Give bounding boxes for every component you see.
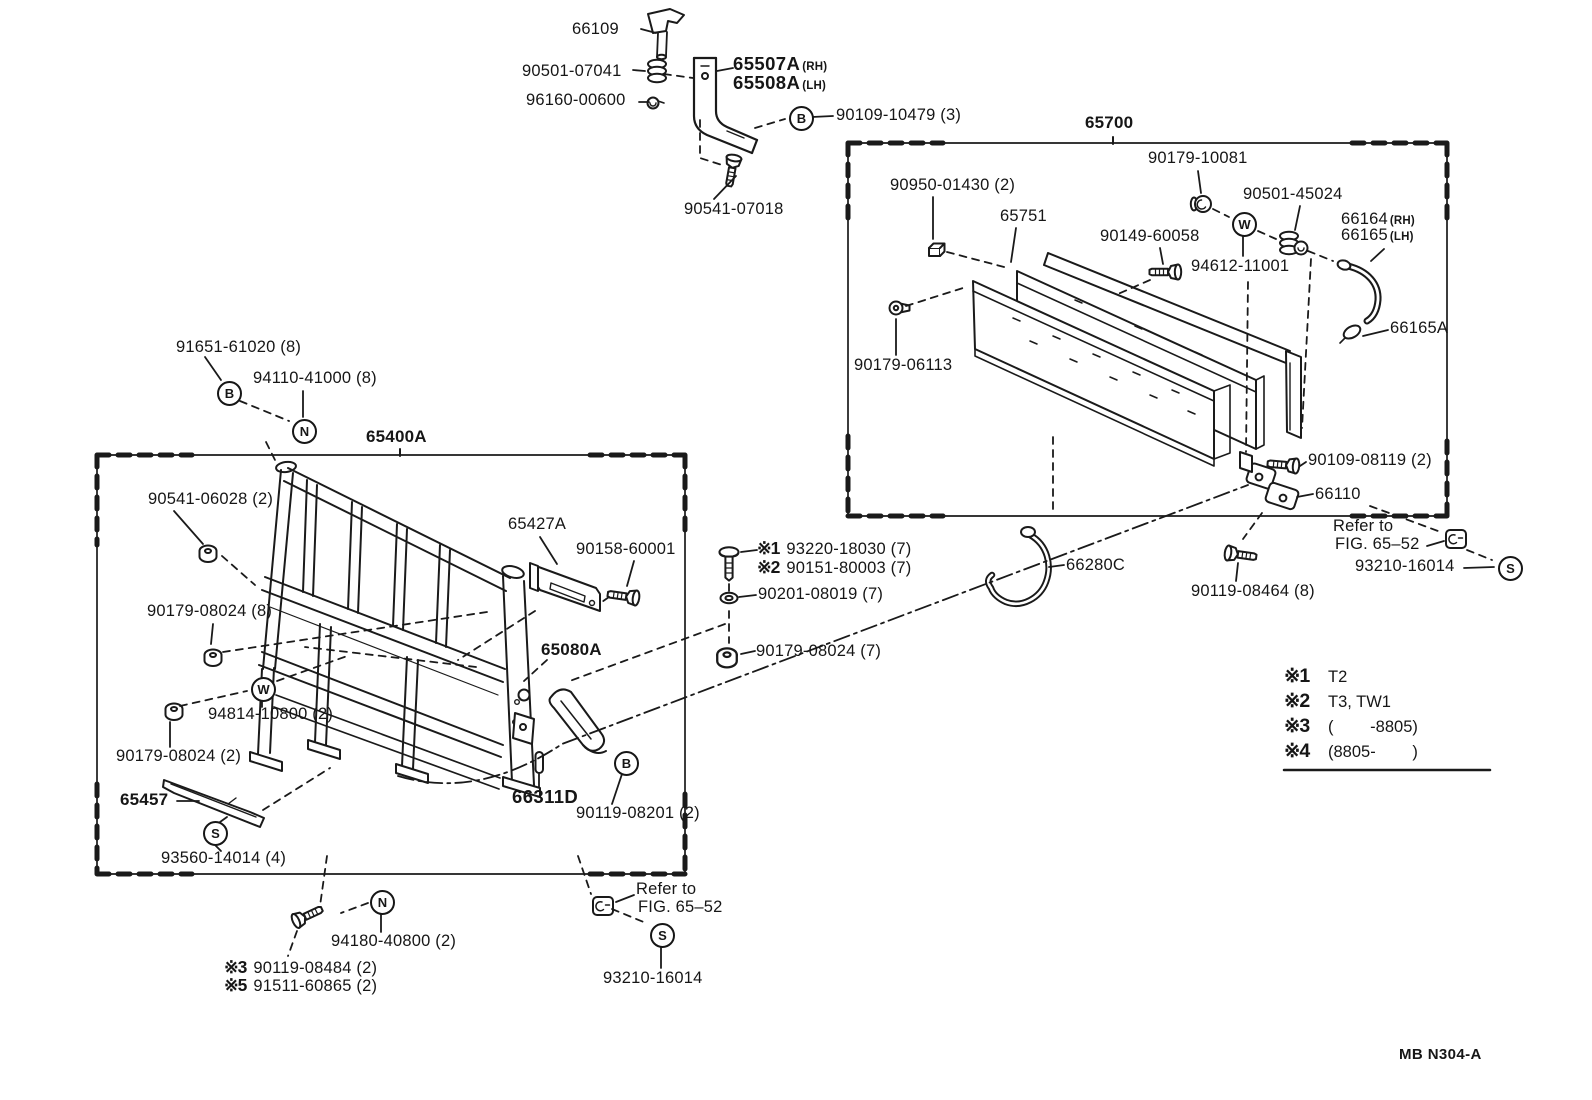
stack-row1-sym: ※1 — [757, 539, 779, 557]
label-bottom-row2: ※591511-60865 (2) — [224, 976, 377, 995]
label-hinge-bolt: 90109-08119 (2) — [1308, 452, 1432, 469]
label-stack-row2: ※290151-80003 (7) — [757, 558, 911, 577]
figure-code: MB N304-A — [1399, 1046, 1482, 1063]
marker-circle-w2: W — [251, 677, 276, 702]
label-rod-lh: 66165(LH) — [1341, 227, 1414, 244]
label-r-clip: 90179-06113 — [854, 357, 952, 374]
legend-row3-text: ( -8805) — [1328, 718, 1418, 737]
clip-66165A-icon — [1340, 323, 1363, 343]
marker-circle-s2: S — [650, 923, 675, 948]
refer-clip-right-icon — [1446, 530, 1466, 548]
rod-66164-icon — [1337, 259, 1379, 321]
legend-row-4: ※4(8805- ) — [1284, 739, 1494, 764]
label-refer-bottom-2: FIG. 65–52 — [638, 899, 723, 916]
legend-row3-sym: ※3 — [1284, 714, 1328, 738]
label-hook: 66280C — [1066, 557, 1125, 574]
latch-65080A-icon — [513, 689, 606, 753]
label-l-washer-w: 94814-10800 (2) — [208, 706, 333, 723]
label-refer-bottom-1: Refer to — [636, 881, 696, 898]
marker-circle-b2: B — [217, 381, 242, 406]
rod-lh-number: 66165 — [1341, 226, 1388, 244]
hinge-bracket-icon — [1240, 452, 1252, 472]
guard-frame-art — [250, 461, 540, 797]
label-cushion: 90501-07041 — [522, 63, 621, 80]
label-refer-right-1: Refer to — [1333, 518, 1393, 535]
marker-circle-s3: S — [1498, 556, 1523, 581]
marker-circle-b3: B — [614, 751, 639, 776]
rod-lh-side: (LH) — [1390, 231, 1414, 243]
marker-circle-n2: N — [370, 890, 395, 915]
spacer-90950-icon — [929, 244, 945, 257]
cushion-icon-top — [648, 60, 666, 82]
legend-row4-text: (8805- ) — [1328, 743, 1418, 762]
bottom-row1-sym: ※3 — [224, 958, 246, 976]
pin-66109-icon — [648, 9, 684, 59]
clip-90179-06113-icon — [890, 302, 910, 315]
grommet-90541-06028-icon — [200, 546, 217, 563]
bolt-90158-icon — [607, 587, 640, 606]
screw-stack-icon — [720, 547, 739, 580]
bottom-row2-num: 91511-60865 (2) — [253, 978, 377, 995]
support-rh-side: (RH) — [802, 61, 827, 73]
grommet-90179-10081-icon — [1191, 196, 1211, 212]
bottom-row1-num: 90119-08484 (2) — [253, 960, 377, 977]
nut-90179-08024-7-icon — [717, 648, 737, 667]
label-r-cushion: 90501-45024 — [1243, 186, 1342, 203]
legend-row2-sym: ※2 — [1284, 689, 1328, 713]
marker-circle-w1: W — [1232, 212, 1257, 237]
label-r-board: 65751 — [1000, 208, 1047, 225]
legend-row2-text: T3, TW1 — [1328, 693, 1391, 712]
protector-65457-icon — [163, 780, 264, 827]
washer-90201-icon — [721, 593, 738, 603]
marker-circle-b1: B — [789, 106, 814, 131]
label-r-screw-washer: 93210-16014 — [1355, 558, 1454, 575]
support-rh-number: 65507A — [733, 53, 800, 74]
label-pin: 66109 — [572, 21, 619, 38]
label-latch-bolt: 90119-08201 (2) — [576, 805, 700, 822]
hook-66280C-icon — [988, 527, 1048, 604]
legend-row-1: ※1T2 — [1284, 664, 1494, 689]
label-stack-row1: ※193220-18030 (7) — [757, 539, 911, 558]
label-refer-right-2: FIG. 65–52 — [1335, 536, 1420, 553]
label-hinge: 66110 — [1315, 486, 1361, 503]
label-protector-screw: 93560-14014 (4) — [161, 850, 286, 867]
marker-circle-s1: S — [203, 821, 228, 846]
label-b-screw-washer: 93210-16014 — [603, 970, 702, 987]
label-screw: 90541-07018 — [684, 201, 783, 218]
bottom-row2-sym: ※5 — [224, 976, 246, 994]
dashed-leader-lines — [180, 74, 1492, 956]
label-rod-clip: 66165A — [1390, 320, 1448, 337]
plate-65427A-icon — [530, 563, 600, 611]
pin-66311D-icon — [536, 752, 544, 773]
stack-row1-num: 93220-18030 (7) — [786, 541, 911, 558]
support-lh-side: (LH) — [802, 80, 826, 92]
nut-90179-08024-8-icon — [205, 650, 222, 667]
label-l-nut-b: 91651-61020 (8) — [176, 339, 301, 356]
footnote-legend: ※1T2 ※2T3, TW1 ※3( -8805) ※4(8805- ) — [1284, 664, 1494, 764]
label-r-spacer: 90950-01430 (2) — [890, 177, 1015, 194]
legend-row-3: ※3( -8805) — [1284, 714, 1494, 739]
label-latch: 65080A — [541, 641, 602, 659]
label-right-box-title: 65700 — [1085, 114, 1133, 132]
label-left-box-title: 65400A — [366, 428, 427, 446]
legend-row1-sym: ※1 — [1284, 664, 1328, 688]
stack-row2-sym: ※2 — [757, 558, 779, 576]
screw-grommet-96160-icon — [648, 98, 665, 109]
label-bolt-b: 90109-10479 (3) — [836, 107, 961, 124]
label-r-washer: 94612-11001 — [1191, 258, 1289, 275]
refer-clip-bottom-icon — [593, 897, 613, 915]
legend-row-2: ※2T3, TW1 — [1284, 689, 1494, 714]
label-l-nut8: 90179-08024 (8) — [147, 603, 272, 620]
label-r-grommet: 90179-10081 — [1148, 150, 1247, 167]
cushion-90501-45024-icon — [1280, 232, 1308, 255]
label-r-bolt-sm: 90149-60058 — [1100, 228, 1199, 245]
label-support-lh: 65508A(LH) — [733, 73, 826, 93]
marker-circle-n1: N — [292, 419, 317, 444]
label-l-grommet: 90541-06028 (2) — [148, 491, 273, 508]
legend-row1-text: T2 — [1328, 668, 1347, 687]
support-lh-number: 65508A — [733, 72, 800, 93]
label-r-bolt8: 90119-08464 (8) — [1191, 583, 1315, 600]
label-bottom-row1: ※390119-08484 (2) — [224, 958, 377, 977]
stack-row2-num: 90151-80003 (7) — [786, 560, 911, 577]
bolt-90119-08464-icon — [1224, 545, 1257, 564]
label-plate: 65427A — [508, 516, 566, 533]
label-stack-nut: 90179-08024 (7) — [756, 643, 881, 660]
parts-diagram-page: 66109 90501-07041 96160-00600 65507A(RH)… — [0, 0, 1592, 1100]
legend-row4-sym: ※4 — [1284, 739, 1328, 763]
label-bottom-bolt: 94180-40800 (2) — [331, 933, 456, 950]
label-l-nut2: 90179-08024 (2) — [116, 748, 241, 765]
label-plate-bolt: 90158-60001 — [576, 541, 675, 558]
label-pin-66311D: 66311D — [512, 787, 578, 806]
label-l-washer-n: 94110-41000 (8) — [253, 370, 377, 387]
bolt-94180-icon — [290, 902, 325, 929]
label-protector: 65457 — [120, 791, 168, 809]
label-stack-washer: 90201-08019 (7) — [758, 586, 883, 603]
label-grommet: 96160-00600 — [526, 92, 625, 109]
bolt-90149-icon — [1150, 265, 1182, 280]
rod-rh-side: (RH) — [1390, 215, 1415, 227]
screw-90541-07018-icon — [722, 154, 742, 188]
